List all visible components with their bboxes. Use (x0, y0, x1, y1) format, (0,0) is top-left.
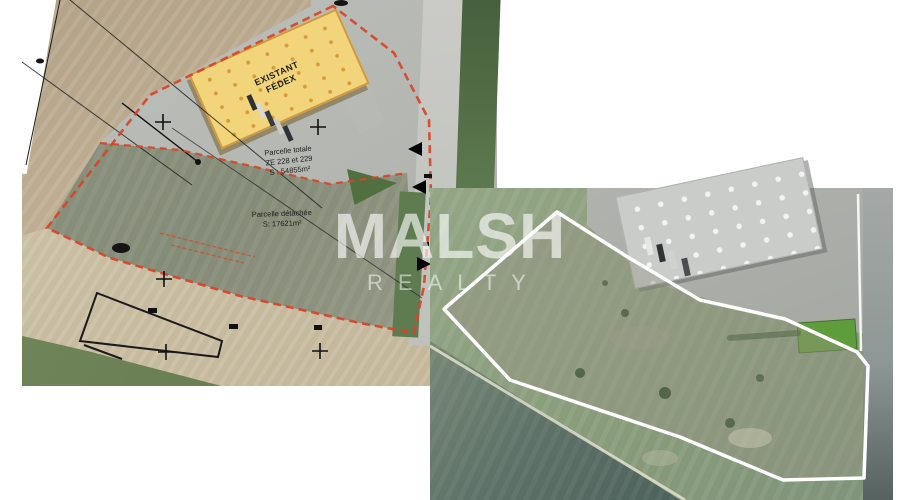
field-blob (112, 243, 130, 253)
survey-dot (195, 159, 201, 165)
plus-marker-icon (156, 271, 172, 287)
plus-marker-icon (312, 343, 328, 359)
sand-patch (610, 326, 670, 350)
cadastral-line (26, 0, 60, 165)
vegetation-blob (575, 368, 585, 378)
field-blob (314, 325, 322, 330)
arrow-left-icon (408, 142, 422, 156)
vegetation-blob (756, 374, 764, 382)
page-canvas: EXISTANT FÉDEX (0, 0, 900, 500)
cadastral-aerial-map: EXISTANT FÉDEX (22, 0, 497, 386)
sand-patch (728, 428, 772, 448)
red-annotation-marks (171, 245, 244, 263)
arrow-left-icon (412, 180, 426, 194)
plus-marker-icon (158, 344, 174, 360)
red-parcel-boundary (47, 6, 431, 333)
vegetation-blob (602, 280, 608, 286)
vegetation-blob (659, 387, 671, 399)
road-vehicle (424, 174, 432, 178)
white-boundary-road-segment (858, 194, 861, 351)
vegetation-blob (621, 309, 629, 317)
road-vehicle (423, 242, 429, 246)
vegetation-blob (725, 418, 735, 428)
photo-overlay (430, 188, 893, 500)
survey-line (122, 103, 198, 162)
field-blob (36, 59, 44, 64)
field-rectangle-outline (80, 293, 222, 357)
field-blob (229, 324, 238, 329)
plus-marker-icon (310, 119, 326, 135)
plus-marker-icon (155, 114, 171, 130)
cadastral-line (70, 0, 322, 208)
sand-patch (642, 450, 678, 466)
detached-parcel-note: Parcelle détachée S: 17621m² (234, 207, 331, 230)
field-blob (334, 0, 348, 6)
cadastral-overlay (22, 0, 497, 386)
cadastral-line (22, 62, 192, 185)
field-blob (148, 308, 157, 313)
aerial-photo-map (430, 188, 893, 500)
field-rectangle-tail (84, 345, 122, 359)
arrow-right-icon (417, 257, 431, 271)
